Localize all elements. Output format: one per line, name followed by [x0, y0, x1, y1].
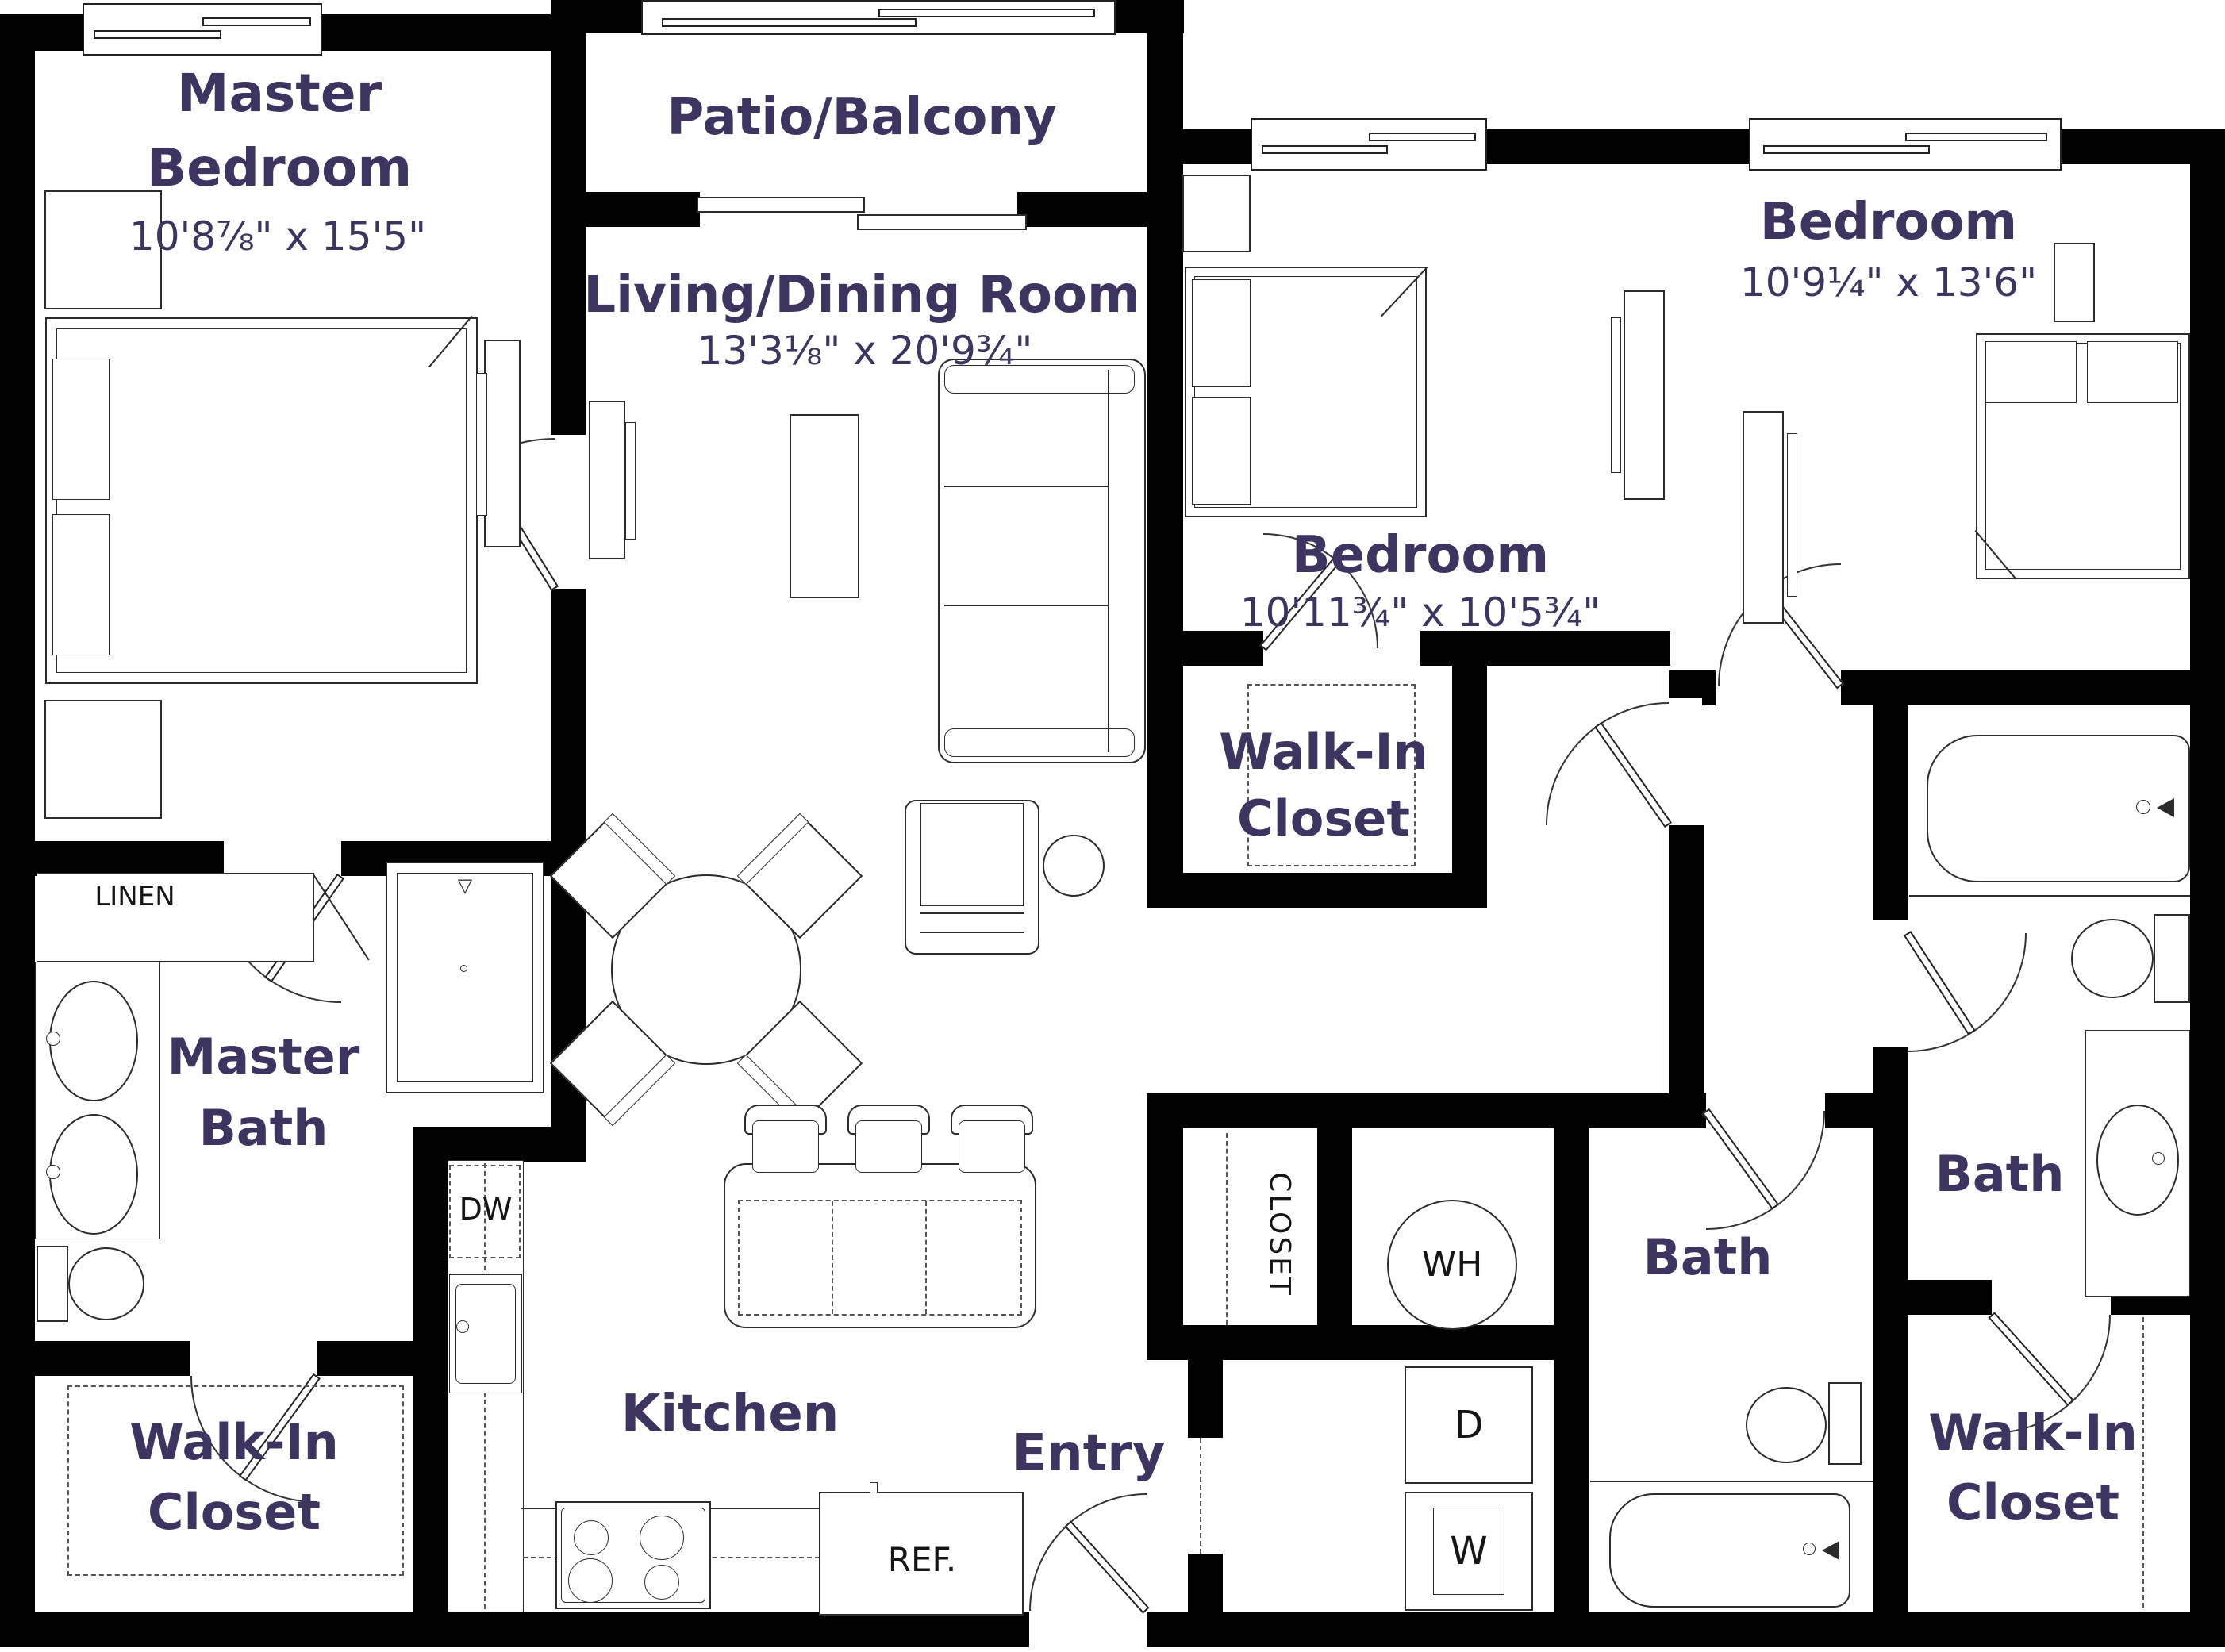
- wall-hall-divider: [1669, 825, 1704, 1093]
- toilet-tank: [2154, 914, 2190, 1003]
- wall-master-right-lower: [551, 589, 586, 843]
- shower-head-mark: ▽: [458, 876, 472, 895]
- window-sash: [878, 9, 1095, 17]
- window-sash: [662, 18, 917, 27]
- tub-faucet-knob: [2136, 800, 2150, 814]
- wall-bathright-bottom-left: [1908, 1280, 1992, 1315]
- window-sash: [202, 17, 311, 26]
- wall-block-bottom: [1147, 1325, 1554, 1360]
- bath-middle-label: Bath: [1643, 1233, 1773, 1282]
- armchair-line: [920, 912, 1024, 914]
- tv: [625, 422, 636, 540]
- tv: [1611, 317, 1621, 473]
- vanity-sink: [2096, 1105, 2179, 1216]
- pillow: [52, 514, 110, 655]
- toilet-tank: [1828, 1382, 1862, 1465]
- pillow: [1192, 279, 1251, 387]
- wall-entry-right-upper: [1188, 1360, 1223, 1438]
- chair-back: [737, 813, 809, 886]
- wall-masterbath-top-left: [33, 841, 224, 876]
- burner: [568, 1558, 613, 1603]
- window-bedroom-middle: [1251, 118, 1487, 171]
- nightstand: [1182, 175, 1251, 252]
- wall-bedright-bottom: [1841, 670, 2193, 705]
- kitchen-label: Kitchen: [621, 1389, 840, 1439]
- bedroom-middle-label: Bedroom: [1292, 530, 1549, 581]
- wall-bedmid-bottom-left: [1148, 631, 1263, 666]
- master-bath-label-2: Bath: [199, 1104, 329, 1153]
- bedroom-middle-dims: 10'11¾" x 10'5¾": [1240, 593, 1601, 632]
- sofa-seat-line: [944, 486, 1108, 487]
- wall-bathright-left-lower: [1873, 1047, 1908, 1612]
- wall-entry-right-lower: [1188, 1554, 1223, 1612]
- tub-faucet-knob: [1803, 1543, 1816, 1555]
- faucet: [46, 1032, 60, 1046]
- refrigerator-label: REF.: [888, 1543, 956, 1577]
- shower-drain: [460, 965, 467, 972]
- media-console: [589, 401, 625, 559]
- wall-masterwic-top-left: [33, 1341, 190, 1376]
- sofa: [938, 359, 1146, 763]
- shower-inner: [397, 873, 533, 1082]
- bath-divider-line: [1909, 895, 2190, 897]
- walkin-right-label-1: Walk-In: [1928, 1408, 2137, 1458]
- pillow: [2087, 341, 2178, 403]
- walkin-middle-label-2: Closet: [1237, 794, 1410, 843]
- wall-bedmid-bottom-right: [1420, 631, 1670, 666]
- kitchen-sink-basin: [455, 1284, 516, 1384]
- master-bedroom-dims: 10'8⅞" x 15'5": [129, 217, 426, 256]
- wall-master-top-right: [321, 14, 552, 51]
- faucet: [46, 1165, 60, 1179]
- toilet-bowl: [68, 1247, 144, 1320]
- tub-faucet: [2157, 798, 2174, 817]
- living-dining-label: Living/Dining Room: [583, 270, 1139, 321]
- walkin-middle-label-1: Walk-In: [1219, 728, 1428, 777]
- wall-closetmid-bottom: [1147, 873, 1487, 908]
- sofa-back-line: [1108, 370, 1109, 752]
- chair-back: [604, 813, 676, 886]
- toilet-tank: [37, 1246, 68, 1322]
- master-bedroom-label-2: Bedroom: [147, 142, 412, 194]
- wall-master-top-left: [22, 14, 89, 51]
- coffee-table: [790, 414, 859, 598]
- tv: [476, 373, 487, 516]
- bar-stool-seat: [855, 1120, 922, 1173]
- bedroom-right-label: Bedroom: [1760, 197, 2017, 248]
- wall-exterior-bottom-right: [1147, 1612, 2225, 1647]
- window-master: [83, 3, 322, 56]
- patio-balcony-label: Patio/Balcony: [667, 92, 1056, 143]
- faucet: [2152, 1152, 2165, 1165]
- window-sash: [1905, 133, 2047, 141]
- pillow: [52, 359, 110, 500]
- wall-exterior-right: [2190, 129, 2225, 1647]
- wall-block-left: [1147, 1093, 1183, 1360]
- bath-right-label: Bath: [1935, 1150, 2065, 1199]
- window-bedroom-right: [1749, 118, 2062, 171]
- bar-stool-seat: [959, 1120, 1025, 1173]
- bar-stool-seat: [752, 1120, 819, 1173]
- wall-exterior-bottom-left: [0, 1612, 1029, 1647]
- window-sash: [1262, 145, 1388, 154]
- wall-exterior-left: [0, 14, 35, 1647]
- closet-label: CLOSET: [1265, 1172, 1293, 1297]
- vanity-sink: [49, 1114, 138, 1235]
- toilet-bowl: [1746, 1387, 1827, 1463]
- walkin-master-label-2: Closet: [148, 1488, 321, 1537]
- window-patio: [641, 0, 1116, 35]
- nightstand: [44, 700, 162, 819]
- wall-hall-divider-stub: [1669, 670, 1704, 698]
- laundry-opening-dashed: [1200, 1438, 1201, 1554]
- island-divider: [925, 1201, 927, 1314]
- island-cabinets: [738, 1200, 1022, 1316]
- wall-closetmid-right: [1452, 666, 1487, 908]
- sliding-door-panel: [857, 214, 1027, 230]
- refrigerator-handle: [870, 1482, 878, 1493]
- burner: [644, 1565, 679, 1600]
- wall-kitchen-left: [413, 1127, 448, 1612]
- sliding-door-panel: [697, 197, 865, 213]
- living-dining-dims: 13'3⅛" x 20'9¾": [697, 331, 1033, 371]
- wall-wh-dw-right: [1554, 1093, 1589, 1612]
- armchair-line: [920, 932, 1024, 933]
- window-sash: [94, 30, 221, 39]
- bathtub: [1927, 735, 2190, 882]
- linen-closet: [37, 873, 314, 962]
- toilet-bowl: [2071, 919, 2154, 998]
- dresser: [484, 340, 521, 547]
- island-divider: [832, 1201, 833, 1314]
- armchair-seat: [920, 803, 1024, 906]
- floor-plan: ▽ Master Bedroom 10'8⅞" x 15'5" Patio/Ba…: [0, 0, 2225, 1652]
- window-sash: [1369, 133, 1476, 141]
- sofa-armrest: [944, 728, 1135, 757]
- wall-block-top-right: [1825, 1093, 1873, 1128]
- walkin-master-label-1: Walk-In: [129, 1418, 338, 1467]
- sofa-seat-line: [944, 605, 1108, 606]
- pillow: [1985, 341, 2077, 403]
- wall-bathright-left-upper: [1873, 705, 1908, 920]
- nightstand: [2054, 243, 2095, 322]
- entry-label: Entry: [1012, 1428, 1165, 1479]
- bath-divider-line: [1590, 1481, 1873, 1482]
- washer-label: W: [1450, 1532, 1487, 1570]
- wall-closet-right: [1317, 1093, 1352, 1360]
- tub-faucet: [1822, 1541, 1839, 1560]
- wall-patio-bottom-left: [551, 192, 700, 227]
- faucet: [456, 1320, 469, 1333]
- water-heater-label: WH: [1422, 1247, 1483, 1282]
- side-table: [1043, 835, 1105, 897]
- wall-block-top-left: [1147, 1093, 1706, 1128]
- dryer-label: D: [1455, 1406, 1484, 1444]
- closet-rod: [2142, 1317, 2144, 1608]
- dishwasher-label: DW: [459, 1194, 513, 1224]
- closet-rod: [1226, 1133, 1228, 1325]
- walkin-right-label-2: Closet: [1946, 1478, 2119, 1527]
- wall-living-right: [1147, 0, 1183, 908]
- master-bed-inner: [56, 328, 467, 673]
- master-bath-label-1: Master: [167, 1032, 360, 1081]
- vanity-sink: [49, 981, 138, 1101]
- linen-label: LINEN: [94, 883, 175, 910]
- wall-bedright-bottom-stub: [1702, 670, 1716, 705]
- burner: [640, 1516, 684, 1560]
- chair-back: [604, 1055, 676, 1127]
- tv: [1787, 433, 1797, 597]
- pillow: [1192, 397, 1251, 505]
- dresser: [1624, 290, 1665, 500]
- bedroom-right-dims: 10'9¼" x 13'6": [1740, 263, 2037, 302]
- dresser: [1743, 411, 1784, 624]
- window-sash: [1763, 145, 1931, 154]
- master-bedroom-label-1: Master: [177, 67, 382, 120]
- burner: [574, 1520, 609, 1555]
